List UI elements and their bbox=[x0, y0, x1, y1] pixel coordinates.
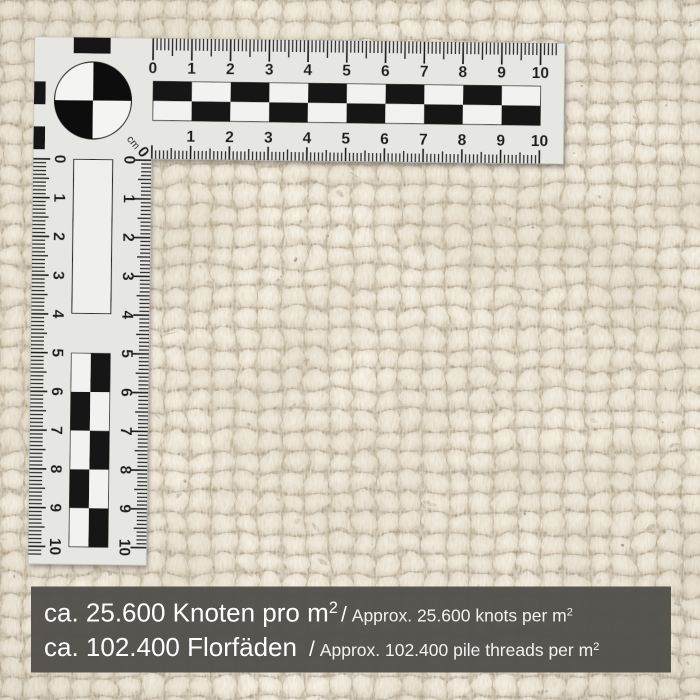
svg-text:8: 8 bbox=[116, 466, 133, 475]
svg-text:2: 2 bbox=[119, 233, 136, 242]
svg-text:9: 9 bbox=[116, 504, 133, 513]
svg-text:9: 9 bbox=[497, 65, 506, 82]
svg-text:9: 9 bbox=[496, 133, 505, 150]
svg-text:4: 4 bbox=[303, 62, 312, 79]
svg-text:10: 10 bbox=[531, 133, 548, 150]
svg-text:2: 2 bbox=[226, 61, 235, 78]
svg-text:2: 2 bbox=[50, 232, 67, 241]
svg-text:6: 6 bbox=[48, 387, 65, 396]
svg-text:3: 3 bbox=[49, 271, 66, 280]
svg-text:8: 8 bbox=[458, 132, 467, 149]
svg-text:6: 6 bbox=[380, 131, 389, 148]
svg-text:1: 1 bbox=[120, 194, 137, 203]
svg-text:5: 5 bbox=[118, 349, 135, 358]
svg-text:3: 3 bbox=[264, 130, 273, 147]
svg-text:1: 1 bbox=[187, 61, 196, 78]
svg-text:4: 4 bbox=[49, 310, 66, 319]
svg-text:5: 5 bbox=[342, 63, 351, 80]
svg-text:2: 2 bbox=[225, 129, 234, 146]
svg-text:7: 7 bbox=[419, 132, 428, 149]
svg-text:10: 10 bbox=[532, 65, 549, 82]
svg-text:10: 10 bbox=[115, 539, 132, 556]
svg-text:6: 6 bbox=[381, 63, 390, 80]
svg-text:1: 1 bbox=[186, 129, 195, 146]
svg-text:7: 7 bbox=[420, 64, 429, 81]
svg-text:4: 4 bbox=[303, 130, 312, 147]
svg-text:7: 7 bbox=[117, 427, 134, 436]
svg-text:5: 5 bbox=[48, 348, 65, 357]
svg-text:0: 0 bbox=[51, 155, 68, 164]
svg-text:0: 0 bbox=[148, 60, 157, 77]
svg-text:10: 10 bbox=[46, 538, 63, 555]
svg-text:8: 8 bbox=[458, 64, 467, 81]
svg-text:7: 7 bbox=[47, 426, 64, 435]
svg-text:5: 5 bbox=[341, 131, 350, 148]
svg-text:3: 3 bbox=[265, 62, 274, 79]
svg-text:0: 0 bbox=[120, 156, 137, 165]
svg-text:8: 8 bbox=[47, 465, 64, 474]
svg-text:3: 3 bbox=[119, 272, 136, 281]
svg-text:9: 9 bbox=[46, 503, 63, 512]
svg-text:6: 6 bbox=[117, 388, 134, 397]
svg-text:4: 4 bbox=[118, 311, 135, 320]
svg-text:1: 1 bbox=[50, 193, 67, 202]
